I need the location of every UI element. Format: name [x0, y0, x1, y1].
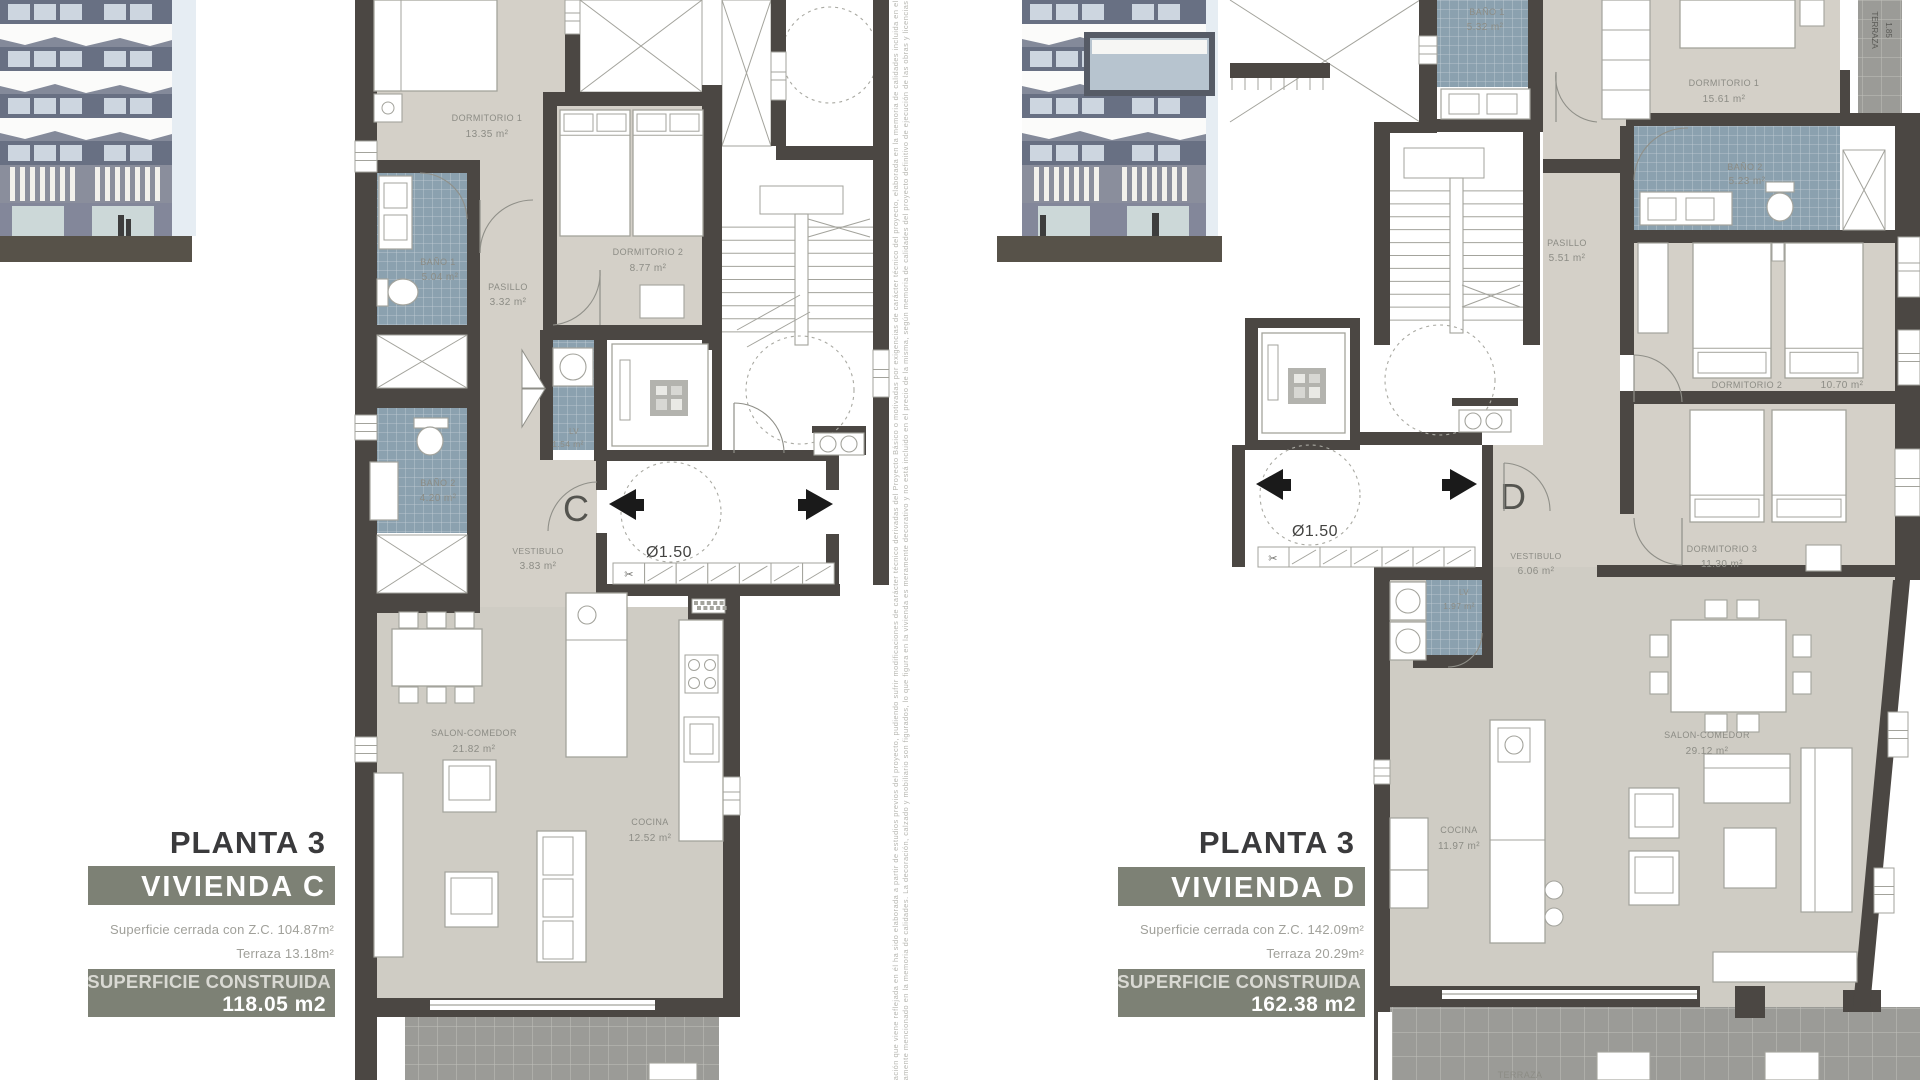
svg-text:118.05 m2: 118.05 m2 [222, 993, 326, 1016]
svg-text:PASILLO: PASILLO [1547, 238, 1587, 248]
svg-text:11.30 m²: 11.30 m² [1701, 559, 1743, 570]
svg-text:5.32 m²: 5.32 m² [1467, 22, 1504, 33]
svg-text:C: C [563, 488, 589, 529]
svg-text:BAÑO 1: BAÑO 1 [1469, 7, 1504, 17]
svg-text:21.82 m²: 21.82 m² [453, 744, 496, 755]
svg-text:15.61 m²: 15.61 m² [1703, 94, 1746, 105]
svg-text:5.51 m²: 5.51 m² [1549, 253, 1586, 264]
svg-text:Ø1.50: Ø1.50 [646, 544, 692, 561]
svg-text:3.32 m²: 3.32 m² [490, 297, 527, 308]
svg-text:DORMITORIO 2: DORMITORIO 2 [613, 247, 684, 257]
svg-text:Ø1.50: Ø1.50 [1292, 523, 1338, 540]
svg-text:excepto lo expresamente mencio: excepto lo expresamente mencionado en la… [901, 0, 910, 1080]
svg-text:BAÑO 1: BAÑO 1 [420, 257, 455, 267]
svg-text:Terraza 20.29m²: Terraza 20.29m² [1266, 946, 1364, 961]
svg-text:COCINA: COCINA [631, 817, 668, 827]
svg-text:12.52 m²: 12.52 m² [629, 833, 672, 844]
svg-text:10.70 m²: 10.70 m² [1821, 380, 1864, 391]
svg-text:Superficie cerrada con Z.C. 1: Superficie cerrada con Z.C. 142.09m² [1140, 922, 1364, 937]
svg-text:29.12 m²: 29.12 m² [1686, 746, 1729, 757]
svg-text:6.06 m²: 6.06 m² [1518, 566, 1555, 577]
svg-text:DORMITORIO 3: DORMITORIO 3 [1687, 544, 1758, 554]
svg-text:3.83 m²: 3.83 m² [520, 561, 557, 572]
svg-text:5.04 m²: 5.04 m² [422, 272, 459, 283]
svg-text:5.23 m²: 5.23 m² [1729, 176, 1766, 187]
svg-text:13.35 m²: 13.35 m² [466, 129, 509, 140]
svg-text:TERRAZA: TERRAZA [1498, 1070, 1543, 1080]
svg-text:✂: ✂ [624, 569, 634, 581]
svg-text:Informativo, la información qu: Informativo, la información que viene re… [891, 0, 900, 1080]
svg-text:DORMITORIO 1: DORMITORIO 1 [1689, 78, 1760, 88]
svg-text:11.97 m²: 11.97 m² [1438, 841, 1480, 852]
svg-text:1.54 m²: 1.54 m² [552, 439, 584, 449]
svg-text:SUPERFICIE CONSTRUIDA: SUPERFICIE CONSTRUIDA [87, 971, 331, 992]
svg-text:BAÑO 2: BAÑO 2 [420, 478, 455, 488]
svg-text:DORMITORIO 1: DORMITORIO 1 [452, 113, 523, 123]
svg-text:162.38 m2: 162.38 m2 [1251, 993, 1356, 1016]
svg-text:COCINA: COCINA [1440, 825, 1477, 835]
svg-text:8.77 m²: 8.77 m² [630, 263, 667, 274]
svg-text:SUPERFICIE CONSTRUIDA: SUPERFICIE CONSTRUIDA [1117, 971, 1361, 992]
svg-text:PLANTA 3: PLANTA 3 [170, 825, 326, 860]
svg-text:SALON-COMEDOR: SALON-COMEDOR [1664, 730, 1750, 740]
svg-text:Superficie cerrada con Z.C. 1: Superficie cerrada con Z.C. 104.87m² [110, 922, 334, 937]
svg-text:DORMITORIO 2: DORMITORIO 2 [1712, 380, 1783, 390]
svg-text:TERRAZA: TERRAZA [1870, 11, 1879, 49]
svg-text:VIVIENDA C: VIVIENDA C [141, 871, 326, 903]
svg-text:LV: LV [1459, 588, 1469, 597]
svg-text:VIVIENDA D: VIVIENDA D [1171, 872, 1356, 904]
svg-text:LV: LV [569, 427, 579, 436]
svg-text:4.20 m²: 4.20 m² [420, 493, 457, 504]
svg-text:Terraza 13.18m²: Terraza 13.18m² [236, 946, 334, 961]
svg-text:1.97 m²: 1.97 m² [1443, 601, 1475, 611]
svg-text:VESTIBULO: VESTIBULO [512, 546, 563, 556]
svg-text:SALON-COMEDOR: SALON-COMEDOR [431, 728, 517, 738]
svg-text:PASILLO: PASILLO [488, 282, 528, 292]
svg-text:✂: ✂ [1268, 553, 1278, 565]
svg-text:VESTIBULO: VESTIBULO [1510, 551, 1561, 561]
svg-text:PLANTA 3: PLANTA 3 [1199, 825, 1355, 860]
svg-text:BAÑO 2: BAÑO 2 [1727, 162, 1762, 172]
svg-text:1.85: 1.85 [1884, 22, 1893, 38]
